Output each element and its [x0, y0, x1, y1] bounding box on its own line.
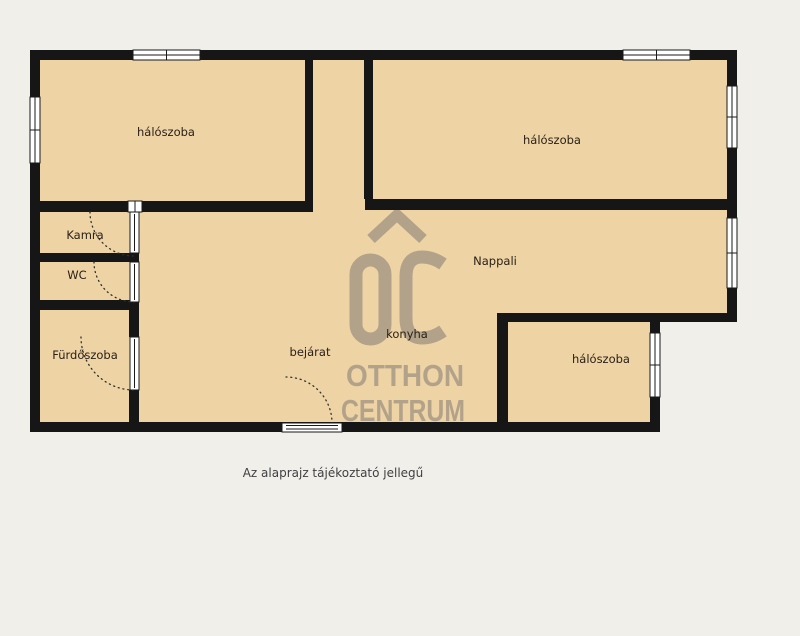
window-bedroom1-top: [133, 50, 200, 60]
window-bedroom2-right: [727, 86, 737, 148]
watermark-line1: OTTHON: [346, 358, 464, 393]
label-wc: WC: [67, 268, 86, 282]
wall-hall-strip-upper: [129, 302, 139, 337]
disclaimer-caption: Az alaprajz tájékoztató jellegű: [243, 466, 424, 480]
door-bathroom: [130, 337, 139, 390]
label-bedroom-top-right: hálószoba: [523, 133, 581, 147]
wall-bedroom3-top: [497, 313, 737, 322]
label-bedroom-top-left: hálószoba: [137, 125, 195, 139]
label-bathroom: Fürdőszoba: [52, 348, 118, 362]
floor-plan-image: OTTHON CENTRUM: [0, 0, 800, 636]
entrance-door-opening: [282, 423, 342, 432]
window-bedroom2-top: [623, 50, 690, 60]
wall-bedroom1-right: [305, 60, 313, 212]
door-wc: [130, 262, 139, 302]
window-bedroom1-left: [30, 97, 40, 163]
wall-wc-bath-divider: [40, 300, 139, 310]
floor-plan-drawing: OTTHON CENTRUM: [0, 0, 800, 636]
wall-bedroom3-left: [497, 313, 508, 422]
label-bedroom-bottom-right: hálószoba: [572, 352, 630, 366]
door-bedroom1: [128, 201, 142, 212]
label-kitchen: konyha: [386, 327, 428, 341]
window-livingroom-right: [727, 218, 737, 288]
wall-bedroom1-bottom: [40, 201, 313, 212]
door-pantry: [130, 212, 139, 253]
wall-bedroom2-bottom: [365, 199, 727, 210]
label-living-room: Nappali: [473, 254, 517, 268]
label-pantry: Kamra: [66, 228, 103, 242]
wall-bottom: [30, 422, 660, 432]
wall-hall-strip-lower: [129, 390, 139, 422]
wall-bedroom2-left: [364, 60, 373, 199]
window-bedroom3-right: [650, 333, 660, 397]
label-entrance: bejárat: [290, 345, 331, 359]
